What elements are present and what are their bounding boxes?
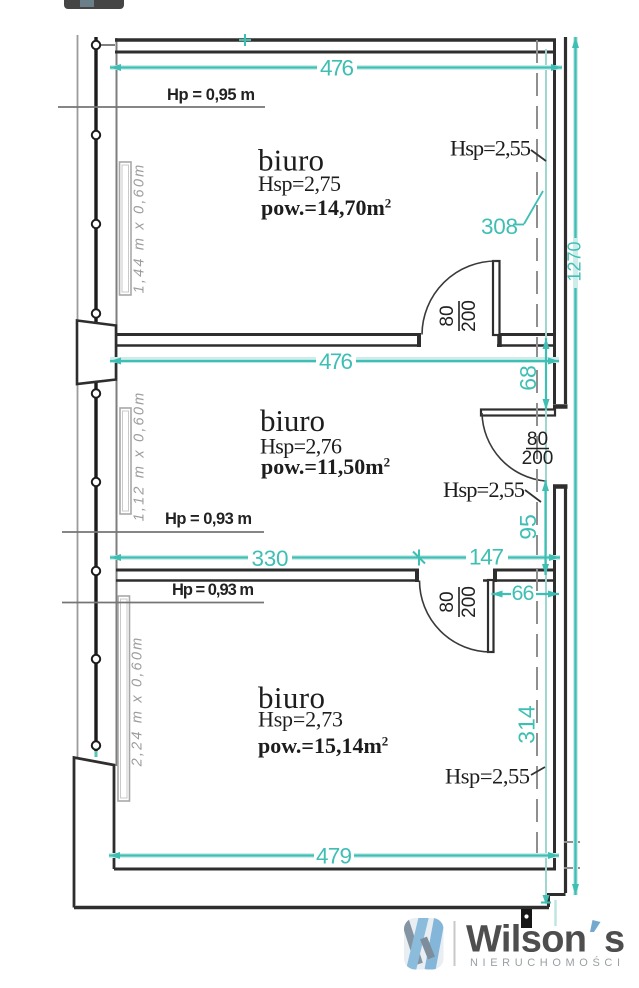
svg-text:80: 80 xyxy=(527,429,548,450)
svg-text:476: 476 xyxy=(320,56,354,81)
svg-text:1,44 m x 0,60m: 1,44 m x 0,60m xyxy=(132,163,148,294)
svg-text:Hsp=2,55: Hsp=2,55 xyxy=(443,477,525,502)
svg-text:200: 200 xyxy=(522,448,554,469)
svg-text:1,12 m x 0,60m: 1,12 m x 0,60m xyxy=(132,391,148,522)
svg-text:Hp = 0,95 m: Hp = 0,95 m xyxy=(167,86,255,104)
svg-text:1270: 1270 xyxy=(565,241,585,281)
svg-text:s: s xyxy=(604,919,625,961)
svg-text:NIERUCHOMOŚCI: NIERUCHOMOŚCI xyxy=(470,956,620,969)
svg-text:95: 95 xyxy=(515,514,541,540)
svg-text:pow.=15,14m2: pow.=15,14m2 xyxy=(258,733,388,758)
svg-text:200: 200 xyxy=(459,586,480,618)
svg-text:Hp = 0,93 m: Hp = 0,93 m xyxy=(172,581,254,599)
svg-text:80: 80 xyxy=(437,305,458,326)
svg-text:68: 68 xyxy=(515,365,541,391)
svg-text:476: 476 xyxy=(319,349,353,374)
svg-text:80: 80 xyxy=(437,591,458,612)
svg-text:Hp = 0,93 m: Hp = 0,93 m xyxy=(165,510,252,528)
svg-text:314: 314 xyxy=(514,705,540,744)
svg-text:Wilson: Wilson xyxy=(466,919,587,961)
svg-text:330: 330 xyxy=(252,546,289,571)
svg-text:pow.=11,50m2: pow.=11,50m2 xyxy=(261,454,390,479)
svg-text:200: 200 xyxy=(459,300,480,332)
svg-text:66: 66 xyxy=(512,581,535,605)
svg-text:479: 479 xyxy=(316,844,352,869)
svg-text:2,24 m x 0,60m: 2,24 m x 0,60m xyxy=(130,636,146,768)
svg-text:Hsp=2,55: Hsp=2,55 xyxy=(445,764,530,789)
svg-text:Hsp=2,73: Hsp=2,73 xyxy=(258,707,343,732)
svg-text:147: 147 xyxy=(469,545,504,570)
svg-text:pow.=14,70m2: pow.=14,70m2 xyxy=(261,195,391,220)
svg-text:Hsp=2,55: Hsp=2,55 xyxy=(450,136,531,161)
svg-text:308: 308 xyxy=(481,214,518,239)
svg-text:Hsp=2,75: Hsp=2,75 xyxy=(258,171,341,196)
